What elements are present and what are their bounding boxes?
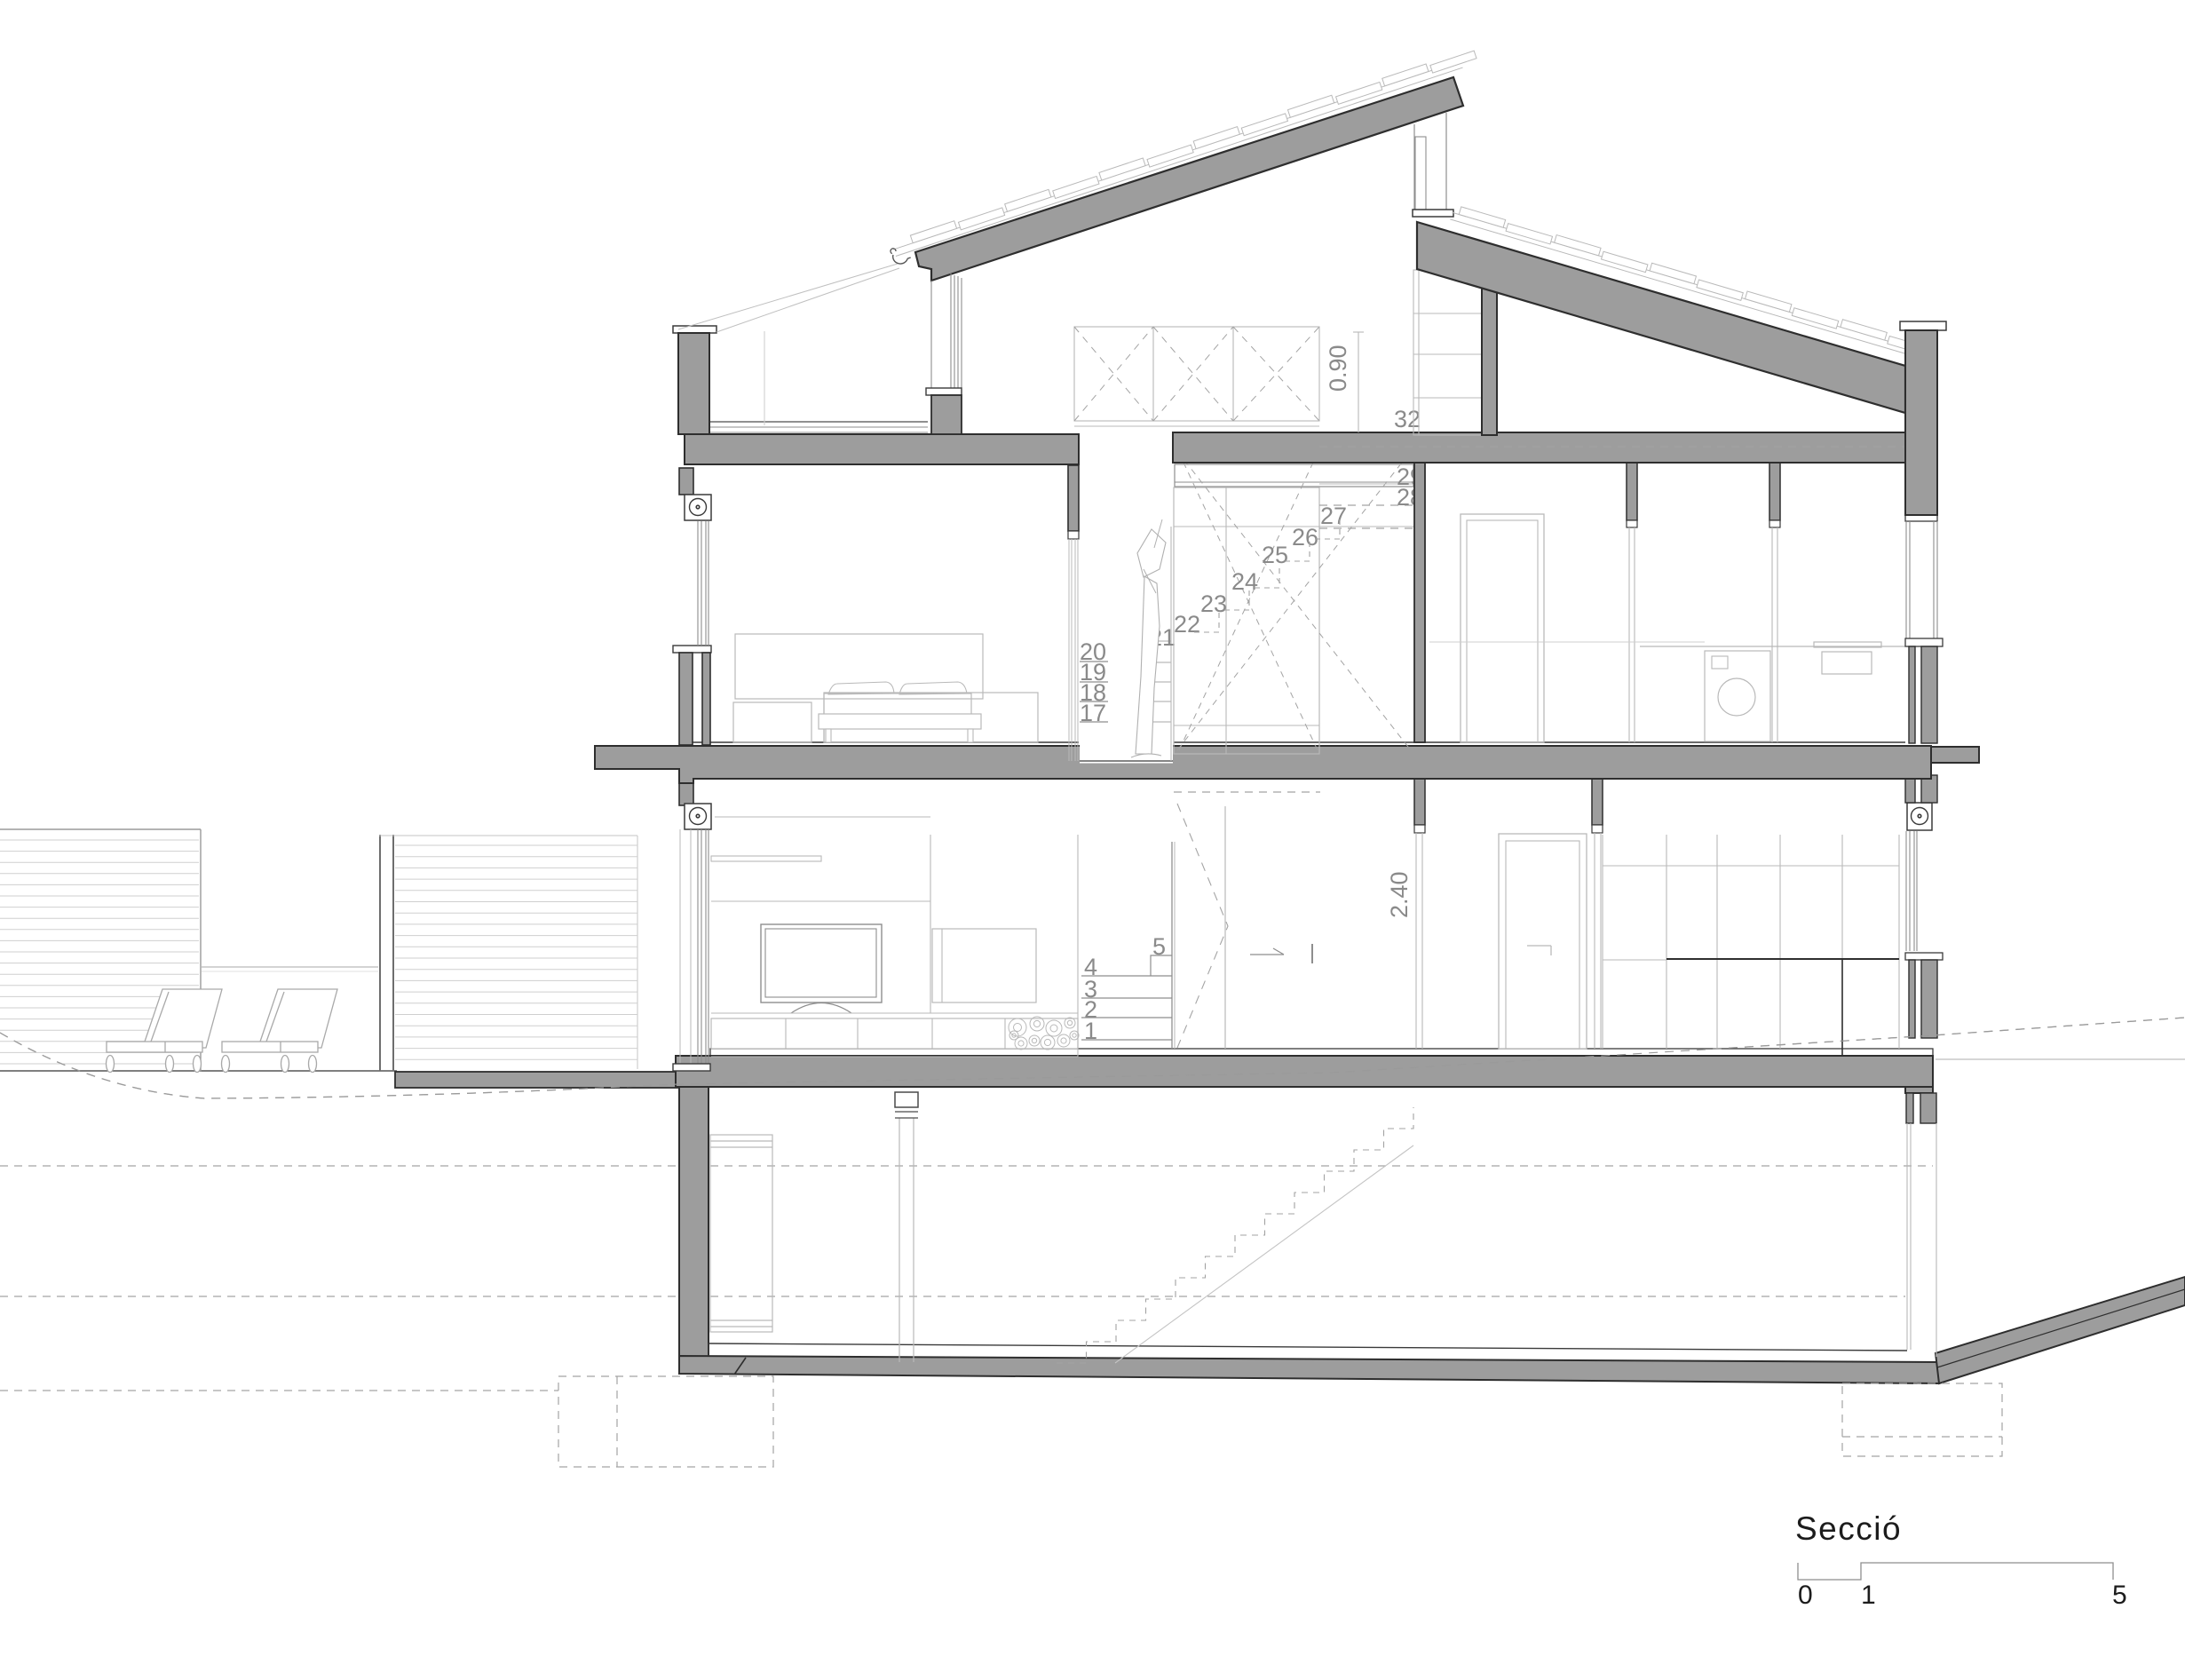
svg-text:1: 1 [1084, 1018, 1097, 1044]
svg-text:22: 22 [1174, 611, 1200, 638]
svg-text:5: 5 [1152, 933, 1166, 960]
svg-text:0: 0 [1798, 1581, 1813, 1610]
svg-text:17: 17 [1080, 700, 1106, 726]
svg-text:2.40: 2.40 [1386, 871, 1413, 918]
svg-text:0.90: 0.90 [1325, 345, 1351, 392]
svg-text:23: 23 [1200, 590, 1227, 617]
svg-text:Secció: Secció [1795, 1510, 1902, 1547]
svg-text:25: 25 [1262, 542, 1288, 568]
svg-text:26: 26 [1292, 524, 1318, 551]
svg-text:24: 24 [1231, 568, 1258, 595]
svg-text:27: 27 [1320, 503, 1347, 529]
svg-text:5: 5 [2112, 1581, 2127, 1610]
svg-text:1: 1 [1861, 1581, 1876, 1610]
svg-text:32: 32 [1394, 406, 1421, 432]
